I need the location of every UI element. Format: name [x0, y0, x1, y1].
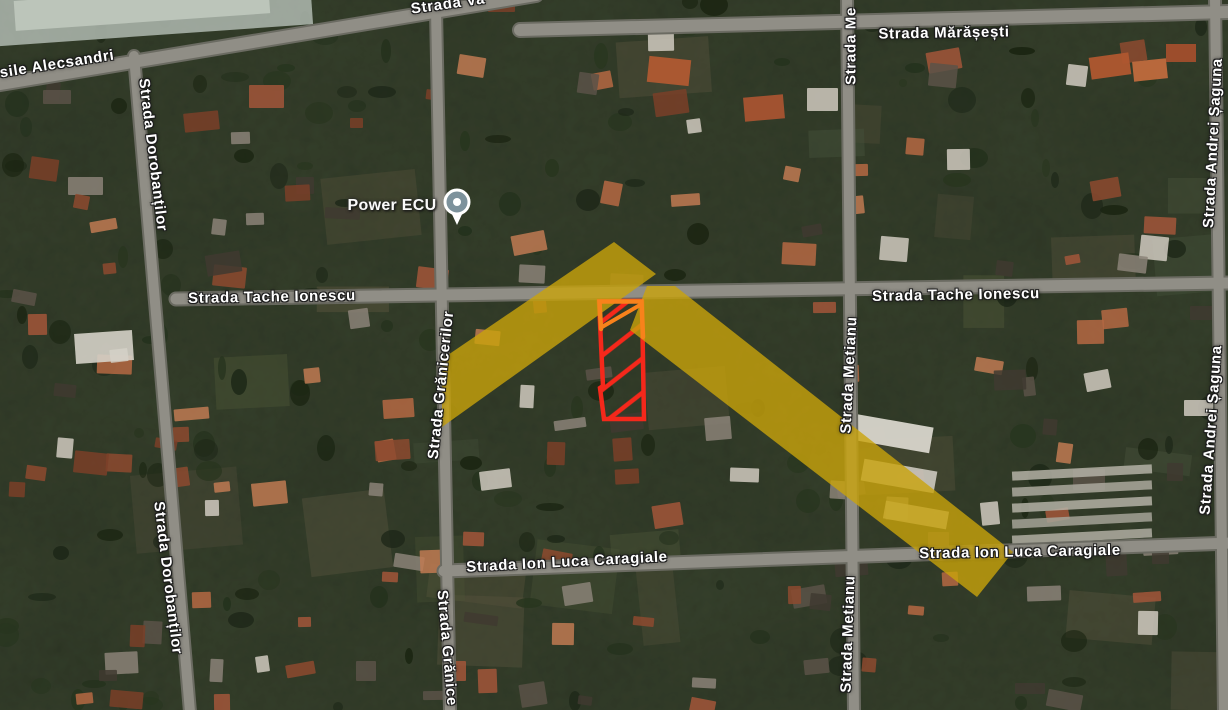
power-ecu-pin-icon[interactable]: [439, 186, 475, 228]
street-label-metianu-top: Strada Me: [843, 7, 860, 85]
satellite-map-canvas[interactable]: sile Alecsandri Strada Va Strada Mărășeș…: [0, 0, 1228, 710]
place-label-power-ecu: Power ECU: [348, 197, 437, 215]
street-label-ion-luca-caragiale-right: Strada Ion Luca Caragiale: [919, 542, 1121, 563]
street-label-tache-ionescu-left: Strada Tache Ionescu: [188, 287, 356, 307]
street-label-tache-ionescu-right: Strada Tache Ionescu: [872, 285, 1040, 305]
street-label-marasesti: Strada Mărășești: [878, 23, 1010, 42]
map-graphics: [0, 0, 1228, 710]
